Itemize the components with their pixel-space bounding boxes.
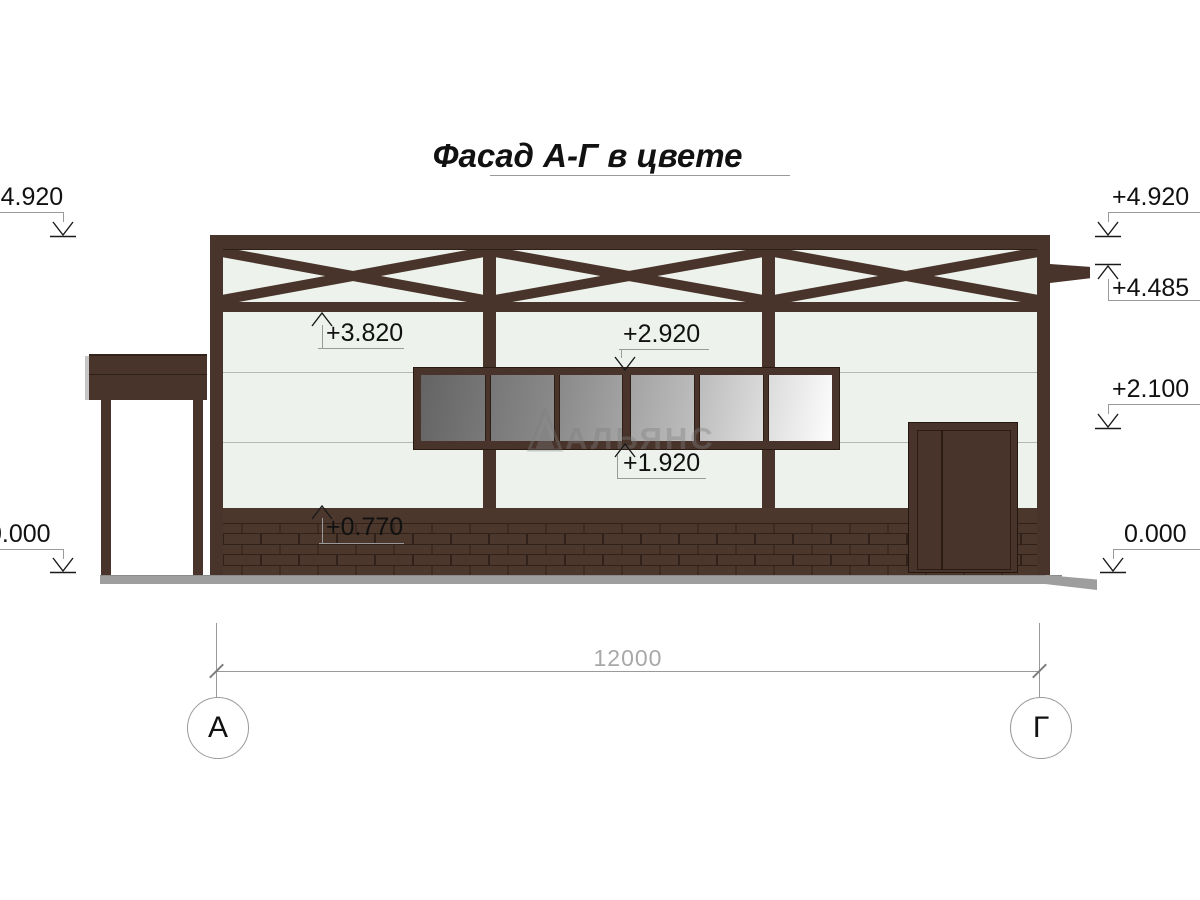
- elevation-right-beam-leader: [1108, 300, 1200, 301]
- elevation-truss-drop: [322, 325, 323, 348]
- elevation-window-sill-value: +1.920: [623, 451, 700, 476]
- elevation-truss-leader: [318, 348, 404, 349]
- elevation-right-beam-value: +4.485: [1112, 276, 1189, 301]
- canopy-fascia: [89, 354, 207, 400]
- drawing-title: Фасад А-Г в цвете: [433, 137, 743, 175]
- elevation-plinth-leader: [319, 543, 404, 544]
- elevation-window-head-leader: [619, 349, 709, 350]
- elevation-left-ground-arrow-icon: [50, 557, 76, 574]
- elevation-right-top-arrow-icon: [1095, 221, 1121, 238]
- entrance-door: [908, 422, 1018, 573]
- axis-bubble-a: А: [187, 697, 249, 759]
- elevation-left-ground-leader: [0, 549, 64, 550]
- elevation-left-ground-value: 0.000: [0, 522, 51, 547]
- canopy-fascia-joint: [89, 374, 207, 375]
- column-right: [1037, 235, 1050, 575]
- elevation-left-top-value: +4.920: [0, 185, 63, 210]
- elevation-truss-value: +3.820: [326, 321, 403, 346]
- elevation-right-ground-arrow-icon: [1100, 557, 1126, 574]
- door-leaf-wide: [941, 430, 1011, 570]
- elevation-left-top-arrow-icon: [50, 221, 76, 238]
- elevation-window-sill-leader: [617, 478, 706, 479]
- parapet-beam: [210, 235, 1050, 250]
- title-underline: [490, 175, 790, 176]
- window-mullion-1: [485, 375, 491, 441]
- column-mid1-upper: [483, 250, 496, 367]
- elevation-right-top-leader: [1108, 212, 1200, 213]
- x-brace-panel-3: [774, 250, 1038, 302]
- canopy-post-rear: [193, 400, 203, 575]
- facade-drawing: Фасад А-Г в цвете АЛ: [0, 0, 1200, 900]
- ground-right-wedge: [1045, 575, 1097, 590]
- column-left: [210, 235, 223, 575]
- extension-line-left: [216, 623, 217, 697]
- canopy-post-front: [101, 400, 111, 575]
- elevation-right-lintel-value: +2.100: [1112, 377, 1189, 402]
- dimension-span-label: 12000: [578, 645, 678, 672]
- column-mid2-lower: [762, 450, 775, 509]
- elevation-right-beam-drop: [1108, 279, 1109, 301]
- elevation-window-head-value: +2.920: [623, 322, 700, 347]
- ground-line: [100, 575, 1062, 584]
- elevation-left-top-leader: [0, 212, 64, 213]
- elevation-right-lintel-leader: [1108, 404, 1200, 405]
- elevation-window-head-arrow-icon: [612, 356, 638, 372]
- x-brace-panel-2: [495, 250, 763, 302]
- axis-label-g: Г: [1033, 711, 1049, 745]
- elevation-plinth-value: +0.770: [326, 515, 403, 540]
- x-brace-panel-1: [222, 250, 484, 302]
- elevation-right-top-value: +4.920: [1112, 185, 1189, 210]
- column-mid2-upper: [762, 250, 775, 367]
- elevation-plinth-drop: [322, 518, 323, 543]
- column-mid1-lower: [483, 450, 496, 509]
- eaves-beam: [210, 302, 1050, 312]
- door-leaf-narrow: [917, 430, 943, 570]
- elevation-right-ground-value: 0.000: [1124, 522, 1187, 547]
- watermark-logo-icon: [527, 408, 563, 452]
- elevation-right-ground-leader: [1113, 549, 1200, 550]
- window-mullion-4: [763, 375, 769, 441]
- axis-bubble-g: Г: [1010, 697, 1072, 759]
- axis-label-a: А: [208, 711, 228, 745]
- elevation-right-lintel-arrow-icon: [1095, 413, 1121, 430]
- elevation-window-sill-drop: [617, 455, 618, 478]
- extension-line-right: [1039, 623, 1040, 697]
- roof-beam-end: [1050, 264, 1090, 283]
